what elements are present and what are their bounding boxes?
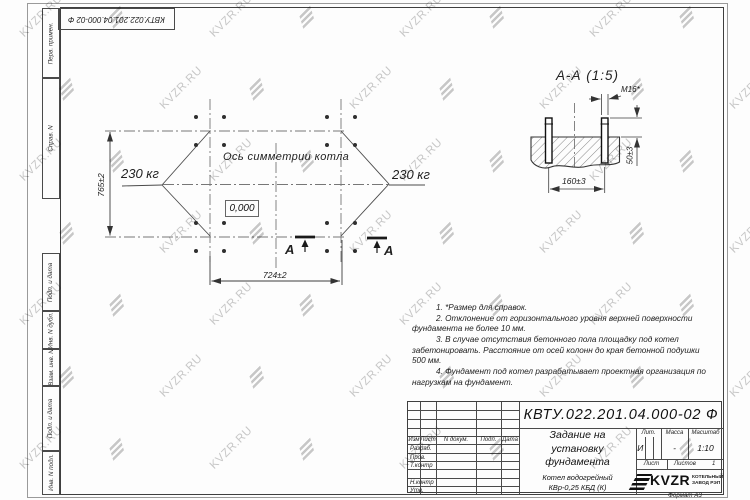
watermark-text: KVZR.RU: [728, 352, 750, 399]
side-label: Справ. N: [48, 125, 55, 151]
side-cell-vzam-inv: Взам. инв. N: [42, 348, 60, 387]
format-label: Формат А3: [668, 492, 702, 499]
row-nkontr: Н.контр: [410, 480, 434, 486]
section-view-drawing: [520, 85, 665, 200]
side-cell-podp-data-1: Подп. и дата: [42, 253, 60, 312]
watermark-text: KVZR.RU: [728, 208, 750, 255]
document-title: Задание на установку фундамента: [519, 428, 636, 471]
row-tkontr: Т.контр: [410, 463, 433, 469]
load-leader-lines: [122, 131, 425, 236]
level-mark-box: 0,000: [225, 200, 259, 217]
col-data: Дата: [501, 436, 519, 444]
note-2: 2. Отклонение от горизонтального уровня …: [412, 314, 710, 335]
col-podp: Подп.: [476, 436, 501, 444]
mass-label: Масса: [661, 428, 688, 437]
note-1: 1. *Размер для справок.: [412, 303, 710, 314]
side-cell-sprav-n: Справ. N: [42, 77, 60, 199]
row-prov: Пров.: [410, 455, 426, 461]
note-3: 3. В случае отсутствия бетонного пола пл…: [412, 335, 710, 367]
side-label: Инв. N подл.: [48, 454, 55, 491]
col-list: Лист: [420, 436, 436, 444]
document-designation: КВТУ.022.201.04.000-02 Ф: [519, 402, 723, 428]
sheets-label: Листов: [674, 461, 696, 467]
section-letter-right: А: [384, 243, 393, 258]
load-label-right: 230 кг: [392, 167, 430, 182]
section-title: А-А (1:5): [556, 68, 619, 83]
dim-bolt-protrusion: 50±3: [622, 143, 638, 167]
side-label: Подп. и дата: [48, 263, 55, 302]
side-label: Взам. инв. N: [48, 349, 55, 386]
load-label-left: 230 кг: [121, 166, 159, 181]
sheet-label: Лист: [636, 459, 667, 469]
mass-value: -: [661, 437, 688, 459]
kvzr-logo-caption: КОТЕЛЬНЫЙ ЗАВОД РЭП: [692, 475, 723, 487]
bolt-size-label: М16*: [621, 85, 640, 94]
title-block: Изм Лист N докум. Подп. Дата Разраб. Про…: [407, 401, 722, 493]
row-utv: Утв.: [410, 488, 424, 494]
rotated-designation-text: КВТУ.022.201.04.000-02 Ф: [68, 15, 165, 24]
lit-value: И: [636, 437, 645, 459]
center-lines: [105, 99, 388, 268]
plan-view-drawing: [80, 90, 410, 300]
lit-label: Лит.: [636, 428, 661, 437]
side-cell-inv-podl: Инв. N подл.: [42, 450, 60, 495]
col-izm: Изм: [408, 436, 420, 444]
rotated-designation-stamp: КВТУ.022.201.04.000-02 Ф: [58, 8, 175, 30]
anchor-bolt-dots: [194, 115, 357, 253]
note-4: 4. Фундамент под котел разрабатывает про…: [412, 367, 710, 388]
product-name: Котел водогрейный КВр-0,25 КБД (К): [519, 471, 636, 494]
col-ndokum: N докум.: [436, 436, 476, 444]
drawing-sheet: KVZR.RUKVZR.RUKVZR.RUKVZR.RUKVZR.RUKVZR.…: [0, 0, 750, 500]
scale-value: 1:10: [688, 437, 723, 459]
scale-label: Масштаб: [688, 428, 723, 437]
section-letter-left: А: [285, 242, 294, 257]
side-label: Инв. N дубл.: [48, 312, 55, 348]
side-cell-perv-primen: Перв. примен.: [42, 8, 60, 79]
level-mark-value: 0,000: [229, 203, 254, 214]
side-label: Перв. примен.: [48, 23, 55, 65]
row-razrab: Разраб.: [410, 446, 432, 452]
dim-width-724: 724±2: [263, 270, 287, 280]
kvzr-logo-text: KVZR: [650, 472, 690, 488]
watermark-text: KVZR.RU: [728, 64, 750, 111]
technical-notes: 1. *Размер для справок. 2. Отклонение от…: [412, 303, 710, 388]
boiler-axis-label: Ось симметрии котла: [223, 151, 349, 163]
sheets-value: 1: [712, 461, 715, 467]
dim-bolt-spacing: 160±3: [562, 176, 586, 186]
side-cell-podp-data-2: Подп. и дата: [42, 385, 60, 452]
side-label: Подп. и дата: [48, 399, 55, 438]
dim-height-765: 765±2: [93, 167, 109, 203]
side-cell-inv-dubl: Инв. N дубл.: [42, 310, 60, 350]
